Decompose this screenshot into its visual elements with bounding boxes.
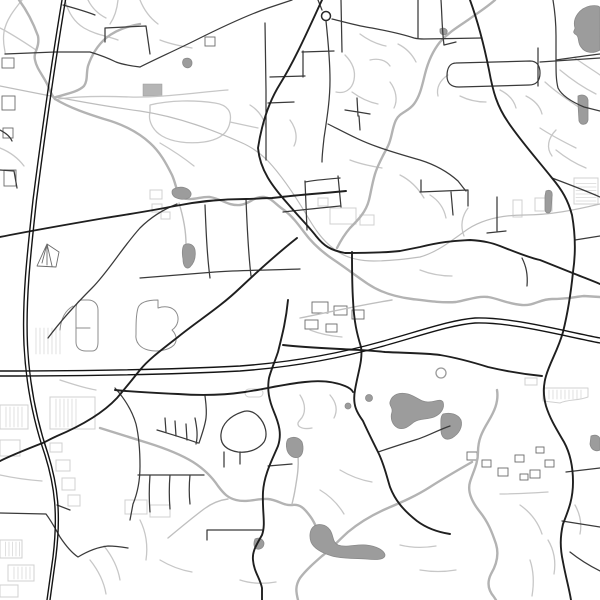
building-dark-17 xyxy=(536,447,544,453)
lakes-2 xyxy=(172,187,191,199)
building-dark-16 xyxy=(520,474,528,480)
streams-1 xyxy=(168,499,228,538)
minor-roads-38 xyxy=(104,546,120,580)
building-11 xyxy=(50,397,95,429)
secondary-roads-30 xyxy=(246,199,251,276)
building-dark-14 xyxy=(530,470,540,478)
minor-roads-22 xyxy=(437,75,448,96)
building-16 xyxy=(62,478,75,490)
building-dark-15 xyxy=(545,460,554,467)
minor-roads-0 xyxy=(3,0,22,54)
building-dark-11 xyxy=(482,460,491,467)
secondary-roads-29 xyxy=(205,205,210,278)
building-dark-10 xyxy=(467,452,477,460)
minor-roads-49 xyxy=(530,560,533,596)
building-14 xyxy=(50,443,62,452)
building-dark-8 xyxy=(305,320,318,329)
building-2 xyxy=(161,212,170,219)
secondary-roads-51 xyxy=(570,552,600,571)
building-dark-5 xyxy=(312,302,328,313)
minor-roads-28 xyxy=(575,58,600,75)
building-dark-13 xyxy=(515,455,524,462)
building-dark-0 xyxy=(2,58,14,68)
secondary-roads-48 xyxy=(378,426,450,452)
building-dark-9 xyxy=(326,324,337,332)
building-10 xyxy=(525,378,537,385)
secondary-roads-6 xyxy=(444,42,456,45)
map-canvas[interactable] xyxy=(0,0,600,600)
minor-roads-29 xyxy=(540,128,576,148)
minor-roads-27 xyxy=(560,70,596,94)
minor-roads-39 xyxy=(90,560,106,594)
secondary-roads-20 xyxy=(345,98,370,130)
minor-roads-41 xyxy=(160,560,192,572)
park-outlines-0 xyxy=(136,300,178,351)
minor-roads-46 xyxy=(420,570,456,572)
lakes-10 xyxy=(183,58,192,68)
minor-roads-4 xyxy=(0,28,36,50)
park-outlines-layer xyxy=(60,300,178,351)
secondary-roads-1 xyxy=(322,21,330,162)
major-roads-2 xyxy=(0,238,297,461)
minor-roads-10 xyxy=(140,0,158,24)
major-roads-7 xyxy=(115,381,353,395)
lakes-12 xyxy=(590,435,600,451)
minor-roads-9 xyxy=(0,148,24,166)
minor-roads-45 xyxy=(400,545,436,547)
building-20 xyxy=(0,540,22,558)
building-19 xyxy=(150,505,170,517)
rivers-3 xyxy=(337,0,495,248)
streams-2 xyxy=(292,456,298,504)
secondary-roads-42 xyxy=(221,411,266,452)
motorways-3 xyxy=(0,323,600,376)
building-poly-1 xyxy=(37,244,59,267)
minor-roads-43 xyxy=(340,470,372,482)
minor-roads-42 xyxy=(240,580,276,583)
minor-roads-52 xyxy=(298,395,312,429)
minor-roads-24 xyxy=(500,90,516,108)
street-map[interactable] xyxy=(0,0,600,600)
minor-roads-25 xyxy=(526,96,542,114)
secondary-roads-49 xyxy=(566,468,600,472)
lakes-8 xyxy=(545,190,552,213)
secondary-roads-36 xyxy=(105,26,150,54)
rivers-1 xyxy=(56,24,140,97)
major-roads-3 xyxy=(0,191,346,237)
secondary-roads-44 xyxy=(138,475,204,512)
secondary-roads-39 xyxy=(157,418,198,443)
building-4 xyxy=(330,208,356,224)
building-7 xyxy=(513,200,522,217)
pond-dot-1 xyxy=(345,403,351,409)
minor-roads-51 xyxy=(575,505,581,534)
secondary-roads-7 xyxy=(265,23,266,160)
roundabout-main xyxy=(322,12,331,21)
secondary-roads-31 xyxy=(140,269,300,278)
minor-roads-17 xyxy=(398,44,416,62)
pond-dot-2 xyxy=(366,395,373,402)
building-22 xyxy=(0,585,18,597)
minor-roads-12 xyxy=(336,55,355,93)
building-6 xyxy=(318,198,328,206)
secondary-roads-40 xyxy=(199,396,206,443)
secondary-roads-27 xyxy=(575,236,600,240)
lakes-3 xyxy=(390,393,444,428)
secondary-roads-9 xyxy=(270,76,305,77)
minor-roads-16 xyxy=(360,34,386,46)
building-filled-0 xyxy=(143,84,162,96)
secondary-roads-2 xyxy=(332,19,482,39)
streams-0 xyxy=(179,203,186,244)
lakes-9 xyxy=(578,95,588,124)
park-outlines-1 xyxy=(76,300,98,351)
lakes-4 xyxy=(441,413,462,439)
secondary-roads-18 xyxy=(328,124,466,191)
minor-roads-6 xyxy=(150,101,231,143)
building-dark-1 xyxy=(2,96,15,110)
building-dark-4 xyxy=(205,37,215,46)
secondary-roads-8 xyxy=(140,0,292,67)
minor-roads-13 xyxy=(370,59,390,66)
rivers-layer xyxy=(19,0,600,600)
minor-roads-23 xyxy=(460,96,486,102)
railway-layer xyxy=(0,86,600,261)
minor-roads-50 xyxy=(548,540,555,574)
secondary-roads-15 xyxy=(305,178,340,182)
building-17 xyxy=(68,495,80,506)
minor-roads-7 xyxy=(230,122,258,128)
secondary-roads-46 xyxy=(207,530,262,540)
minor-roads-26 xyxy=(545,82,580,108)
minor-roads-40 xyxy=(140,520,147,560)
building-dark-12 xyxy=(498,468,508,476)
minor-roads-48 xyxy=(500,492,548,494)
secondary-roads-12 xyxy=(268,102,294,103)
minor-roads-44 xyxy=(320,490,344,514)
building-15 xyxy=(56,460,70,471)
secondary-roads-45 xyxy=(268,464,292,466)
rivers-0 xyxy=(19,0,55,99)
secondary-roads-23 xyxy=(447,61,540,87)
building-0 xyxy=(150,190,162,199)
secondary-roads-28 xyxy=(522,258,527,286)
lakes-0 xyxy=(574,6,600,53)
minor-roads-18 xyxy=(290,120,296,146)
secondary-roads-41 xyxy=(195,418,197,444)
secondary-roads-layer xyxy=(0,0,600,571)
minor-roads-34 xyxy=(420,270,452,276)
minor-roads-37 xyxy=(0,475,42,481)
lakes-6 xyxy=(286,437,303,457)
motorways-0 xyxy=(24,0,62,600)
lakes-5 xyxy=(310,525,385,560)
minor-roads-15 xyxy=(390,82,396,108)
rivers-4 xyxy=(469,390,497,600)
minor-roads-32 xyxy=(430,195,446,218)
roundabout-subdivision xyxy=(436,368,446,378)
minor-roads-53 xyxy=(330,395,336,418)
lakes-11 xyxy=(440,28,447,35)
minor-roads-36 xyxy=(60,380,96,390)
motorways-1 xyxy=(27,0,65,600)
railway-0 xyxy=(0,86,600,261)
minor-roads-3 xyxy=(110,0,118,24)
secondary-roads-43 xyxy=(224,452,240,467)
secondary-roads-13 xyxy=(341,0,342,52)
minor-roads-2 xyxy=(88,0,106,18)
minor-roads-30 xyxy=(556,150,586,168)
secondary-roads-34 xyxy=(5,52,140,67)
minor-roads-14 xyxy=(352,92,378,104)
minor-roads-47 xyxy=(520,505,542,534)
lakes-1 xyxy=(182,244,195,268)
building-18 xyxy=(125,500,147,514)
